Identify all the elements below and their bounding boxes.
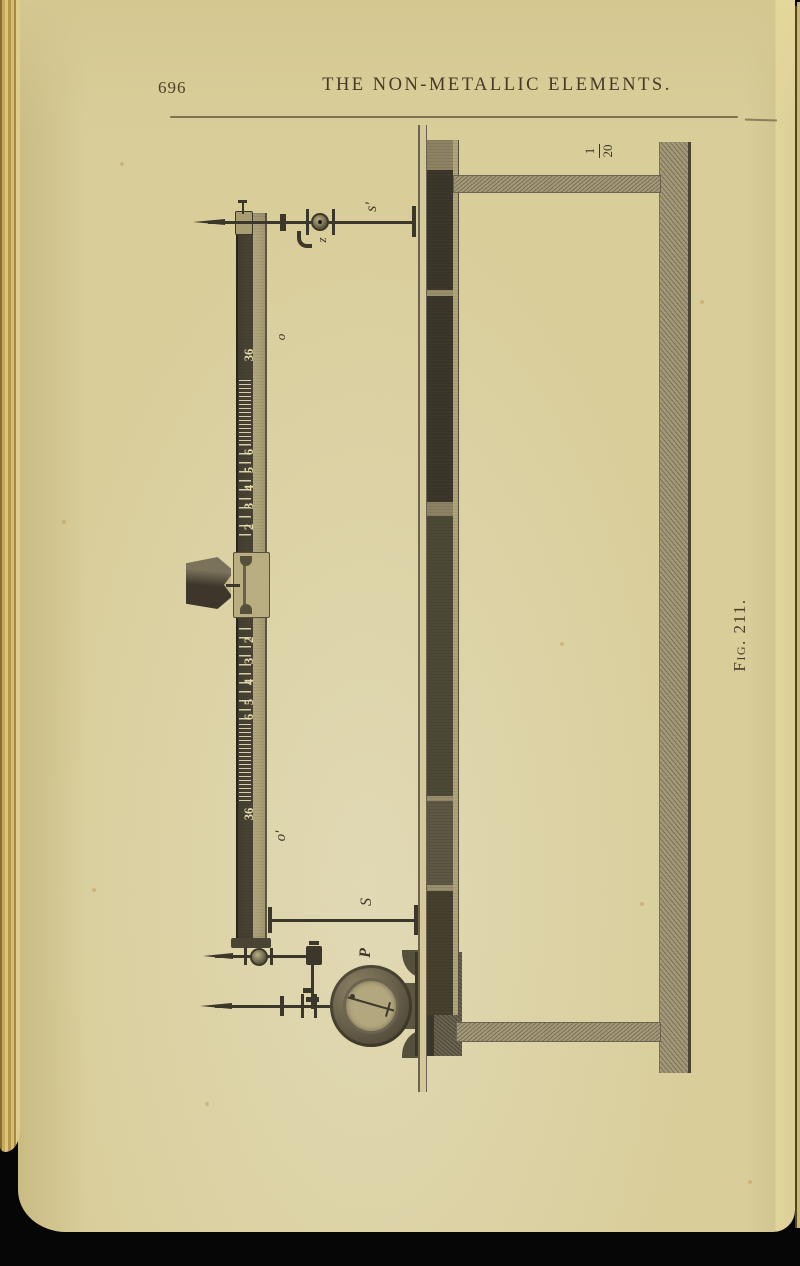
- link-rod-collar: [306, 997, 319, 1002]
- scale-number: 6: [241, 706, 257, 728]
- valve-wheel: [250, 948, 268, 966]
- scale-number: 3: [241, 650, 257, 672]
- book-page-edges-left: [0, 0, 20, 1152]
- paper-speck: [560, 642, 564, 646]
- tube-top-pin-cap: [238, 200, 247, 203]
- label-o: o: [274, 329, 288, 345]
- top-rod-end-bracket: [412, 206, 416, 237]
- running-title: THE NON-METALLIC ELEMENTS.: [200, 75, 794, 99]
- paper-speck: [62, 520, 66, 524]
- tube-foot: [231, 938, 271, 948]
- label-z: z: [314, 230, 330, 250]
- slider-clamp-wedge: [186, 557, 231, 609]
- scanned-book-page: 696 THE NON-METALLIC ELEMENTS. 36 6 5 4 …: [0, 0, 800, 1266]
- valve-knob: [303, 988, 313, 993]
- paper-speck: [92, 888, 96, 892]
- scale-number: 36: [241, 803, 257, 825]
- slider-clamp-pin: [226, 584, 240, 587]
- paper-speck: [205, 1102, 209, 1106]
- scale-number: 36: [241, 344, 257, 366]
- dial-needle-counterweight: [350, 994, 355, 999]
- glass-tube-plate: [418, 125, 427, 1092]
- lower-rod-left-bracket: [268, 907, 272, 933]
- scale-number: 3: [241, 495, 257, 517]
- figure-caption: Fig. 211.: [680, 590, 800, 680]
- stopcock-flange-right: [332, 209, 335, 235]
- valve-flange: [270, 948, 273, 965]
- top-rod-collar: [280, 214, 286, 231]
- valve-flange: [244, 948, 247, 965]
- header-rule: [170, 116, 738, 118]
- scale-ticks-fine-lower: [239, 724, 251, 802]
- fraction-denominator: 20: [600, 145, 616, 158]
- scale-number: 2: [241, 516, 257, 538]
- slider-notch-bottom: [240, 604, 252, 614]
- scale-fraction: 1 20: [577, 136, 621, 166]
- scale-ticks-fine-upper: [239, 380, 251, 444]
- rod-junction-cap: [309, 941, 319, 945]
- column-engraving-texture: [427, 140, 459, 1015]
- valve-flange: [314, 994, 317, 1018]
- bulb-dial: [343, 978, 399, 1034]
- scale-number: 4: [241, 671, 257, 693]
- paper-speck: [120, 162, 124, 166]
- scale-number: 2: [241, 629, 257, 651]
- paper-speck: [640, 902, 644, 906]
- label-s: S: [359, 892, 375, 912]
- fraction-numerator: 1: [582, 144, 599, 159]
- valve-flange: [280, 996, 284, 1016]
- valve-flange: [301, 994, 304, 1018]
- vernier-slider-slit: [243, 560, 246, 610]
- paper-speck: [700, 300, 704, 304]
- paper-speck: [748, 1180, 752, 1184]
- label-s-prime: s': [363, 195, 381, 219]
- frame-bottom-crossbar: [456, 1022, 661, 1042]
- label-o-prime: o': [273, 825, 289, 847]
- stopcock-wheel-center: [318, 220, 322, 224]
- label-p: P: [357, 943, 375, 963]
- tube-top-pin: [242, 202, 244, 214]
- lower-rod: [271, 919, 417, 922]
- frame-top-crossbar: [453, 175, 661, 193]
- rod-junction-block: [306, 946, 322, 965]
